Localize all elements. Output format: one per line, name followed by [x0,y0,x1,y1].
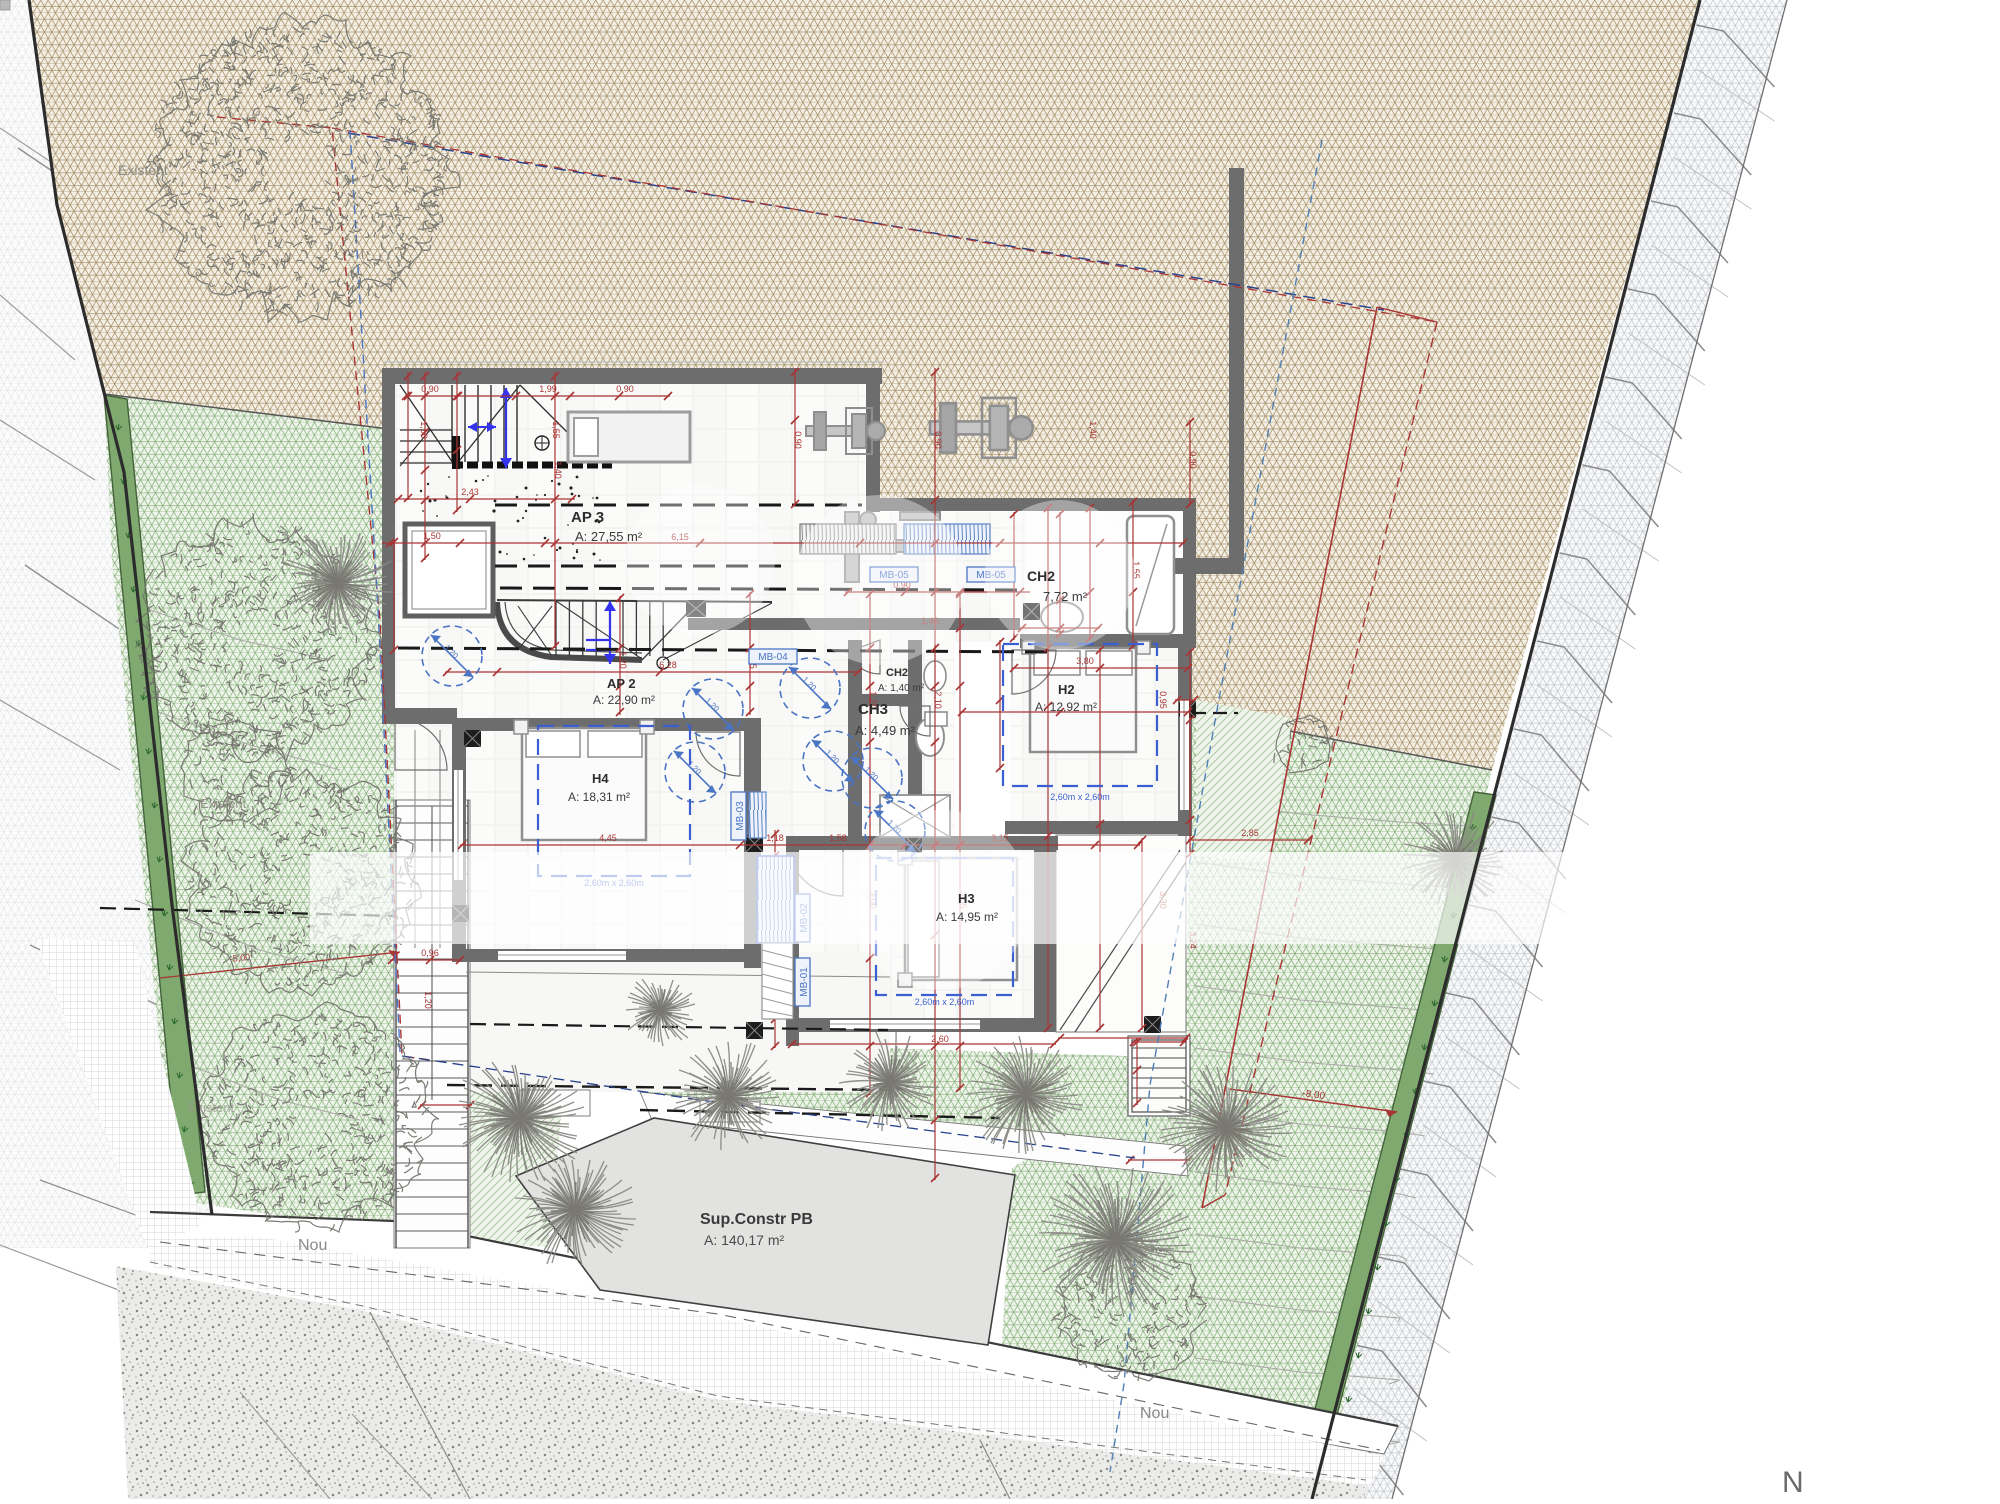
svg-text:1,58: 1,58 [829,833,847,843]
svg-text:CH3: CH3 [858,701,888,718]
svg-text:1,20: 1,20 [618,651,628,669]
svg-text:0,90: 0,90 [933,431,943,449]
svg-text:2,60: 2,60 [931,1034,949,1044]
svg-text:H4: H4 [592,771,609,786]
svg-text:MB-01: MB-01 [799,967,810,997]
svg-text:Existent: Existent [200,796,247,811]
svg-text:0,90: 0,90 [793,431,803,449]
svg-text:0,90: 0,90 [616,384,634,394]
svg-text:2,85: 2,85 [1241,828,1259,838]
svg-text:N: N [1782,1466,1804,1499]
svg-text:H2: H2 [1058,682,1075,697]
svg-text:A: 140,17 m²: A: 140,17 m² [704,1232,784,1248]
svg-text:0,95: 0,95 [1158,691,1168,709]
svg-text:A: 18,31 m²: A: 18,31 m² [568,790,630,804]
svg-text:MB-03: MB-03 [735,801,746,831]
svg-text:MB-04: MB-04 [758,652,788,663]
svg-text:6,28: 6,28 [659,660,677,670]
svg-text:A: 1,40 m²: A: 1,40 m² [878,683,925,694]
svg-text:1,40: 1,40 [1088,421,1098,439]
svg-text:2,10: 2,10 [933,691,943,709]
svg-text:7,72 m²: 7,72 m² [1043,589,1088,604]
svg-text:1,40: 1,40 [553,461,563,479]
svg-text:1,50: 1,50 [419,421,429,439]
svg-text:Sup.Constr PB: Sup.Constr PB [700,1211,813,1228]
svg-text:AP 3: AP 3 [571,509,604,526]
svg-text:1,18: 1,18 [766,833,784,843]
svg-text:1,99: 1,99 [539,384,557,394]
svg-text:H3: H3 [958,891,975,906]
svg-text:1,50: 1,50 [423,531,441,541]
svg-text:2,43: 2,43 [461,487,479,497]
svg-text:Nou: Nou [298,1237,327,1254]
svg-text:2,60m x 2,60m: 2,60m x 2,60m [915,997,975,1007]
svg-text:Nou: Nou [1140,1405,1169,1422]
svg-text:A: 14,95 m²: A: 14,95 m² [936,910,998,924]
svg-text:AP 2: AP 2 [607,676,636,691]
svg-text:A: 27,55 m²: A: 27,55 m² [575,529,643,544]
svg-text:A: 4,49 m²: A: 4,49 m² [855,723,916,738]
svg-text:Existent: Existent [188,1100,235,1115]
svg-text:2,60m x 2,60m: 2,60m x 2,60m [1050,792,1110,802]
svg-text:0,90: 0,90 [421,384,439,394]
svg-text:0,90: 0,90 [1188,451,1198,469]
svg-text:-5,00: -5,00 [229,952,250,964]
svg-text:CH2: CH2 [1027,568,1055,584]
svg-text:A: 22,90 m²: A: 22,90 m² [593,693,655,707]
svg-text:A: 12,92 m²: A: 12,92 m² [1035,700,1097,714]
svg-text:1,55: 1,55 [551,421,561,439]
svg-text:3,80: 3,80 [1076,656,1094,666]
svg-text:1,20: 1,20 [423,991,433,1009]
svg-text:4,45: 4,45 [599,833,617,843]
svg-text:CH2: CH2 [886,667,908,679]
svg-text:0,96: 0,96 [421,948,439,958]
svg-text:Existent: Existent [118,162,168,178]
